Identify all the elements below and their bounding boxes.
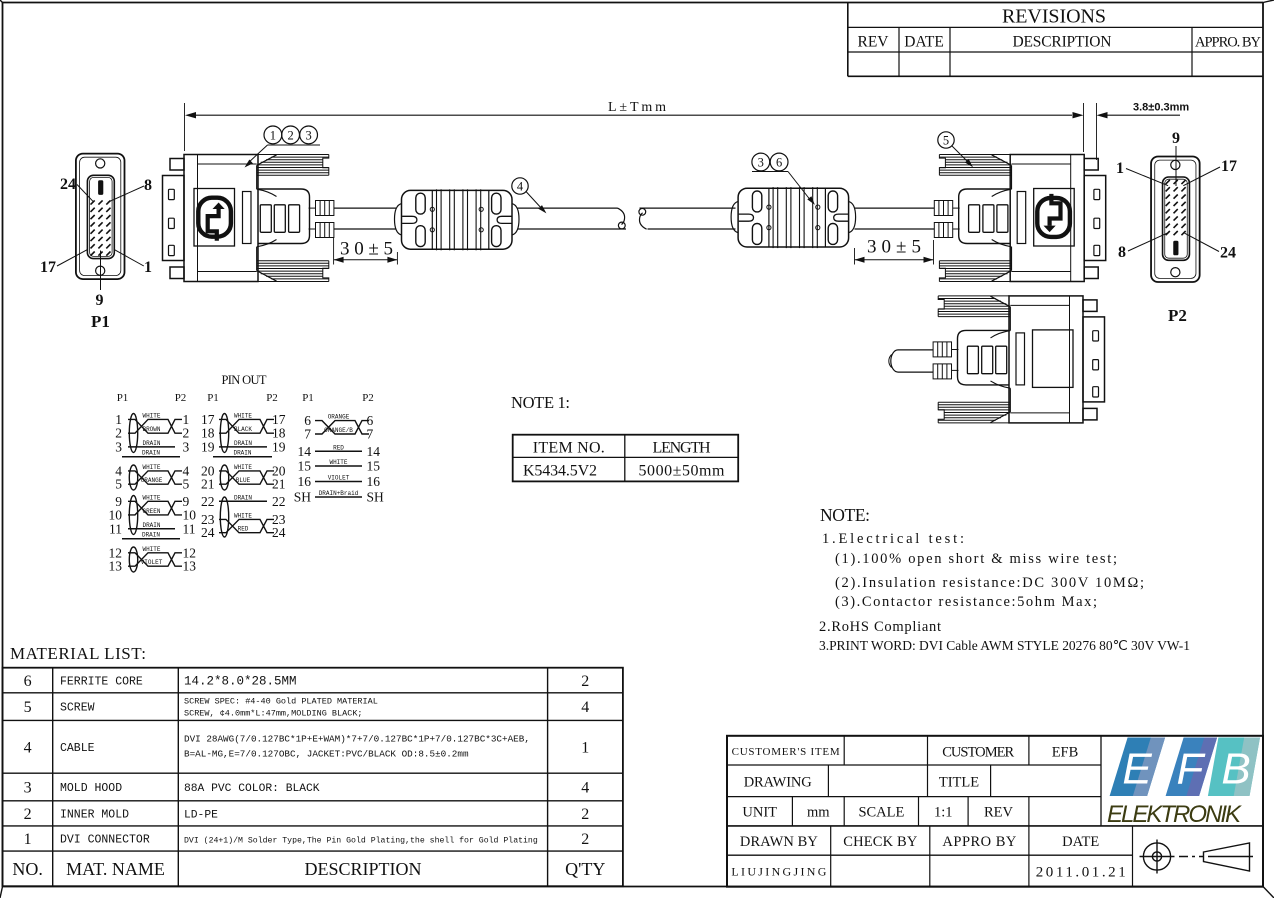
svg-text:E: E <box>1122 745 1152 794</box>
svg-text:Q'TY: Q'TY <box>565 859 605 879</box>
svg-text:DVI 28AWG(7/0.127BC*1P+E+WAM)*: DVI 28AWG(7/0.127BC*1P+E+WAM)*7+7/0.127B… <box>184 733 530 744</box>
svg-text:B: B <box>1221 745 1250 794</box>
svg-text:K5434.5V2: K5434.5V2 <box>523 462 597 479</box>
svg-text:(1).100% open short & miss wir: (1).100% open short & miss wire test; <box>835 551 1117 567</box>
svg-text:14: 14 <box>367 444 381 459</box>
svg-text:8: 8 <box>144 177 152 194</box>
svg-text:11: 11 <box>183 521 196 536</box>
svg-text:P2: P2 <box>266 392 278 404</box>
svg-text:1: 1 <box>183 412 190 427</box>
svg-text:DESCRIPTION: DESCRIPTION <box>305 859 422 879</box>
svg-text:DVI (24+1)/M Solder Type,The P: DVI (24+1)/M Solder Type,The Pin Gold Pl… <box>184 836 538 846</box>
svg-text:CUSTOMER'S ITEM: CUSTOMER'S ITEM <box>732 746 840 758</box>
svg-text:APPRO BY: APPRO BY <box>942 834 1017 850</box>
svg-text:4: 4 <box>581 699 589 716</box>
svg-text:8: 8 <box>1118 244 1126 261</box>
svg-text:INNER MOLD: INNER MOLD <box>60 808 129 821</box>
svg-text:DATE: DATE <box>1062 834 1099 850</box>
svg-text:RED: RED <box>333 444 344 451</box>
svg-text:ELEKTRONIK: ELEKTRONIK <box>1107 801 1242 828</box>
svg-text:WHITE: WHITE <box>142 546 160 553</box>
svg-text:5: 5 <box>943 133 949 147</box>
svg-text:10: 10 <box>183 507 197 522</box>
svg-text:TITLE: TITLE <box>939 775 979 791</box>
svg-text:CHECK BY: CHECK BY <box>843 834 918 850</box>
svg-text:22: 22 <box>201 494 215 509</box>
svg-text:3: 3 <box>305 128 311 142</box>
svg-text:24: 24 <box>272 525 286 540</box>
svg-text:LD-PE: LD-PE <box>184 809 218 821</box>
svg-text:FERRITE CORE: FERRITE CORE <box>60 675 143 688</box>
svg-text:SH: SH <box>367 490 385 505</box>
svg-text:P1: P1 <box>302 392 314 404</box>
svg-text:P2: P2 <box>362 392 374 404</box>
svg-text:17: 17 <box>1221 158 1237 175</box>
svg-text:2.RoHS Compliant: 2.RoHS Compliant <box>819 619 941 635</box>
svg-text:3: 3 <box>183 439 190 454</box>
svg-text:ORANGE/B: ORANGE/B <box>324 427 353 434</box>
svg-text:WHITE: WHITE <box>234 464 252 471</box>
svg-text:1: 1 <box>24 831 32 848</box>
svg-text:13: 13 <box>183 559 197 574</box>
svg-text:UNIT: UNIT <box>742 805 777 821</box>
svg-text:ORANGE: ORANGE <box>328 414 350 421</box>
svg-text:88A PVC COLOR: BLACK: 88A PVC COLOR: BLACK <box>184 783 320 795</box>
svg-text:3.PRINT WORD: DVI Cable AWM ST: 3.PRINT WORD: DVI Cable AWM STYLE 20276 … <box>819 638 1190 653</box>
svg-text:VIOLET: VIOLET <box>141 559 163 566</box>
svg-text:15: 15 <box>367 459 381 474</box>
svg-text:DATE: DATE <box>904 34 944 51</box>
svg-text:MATERIAL LIST:: MATERIAL LIST: <box>10 644 146 663</box>
svg-text:7: 7 <box>304 427 311 442</box>
svg-text:SCREW, ¢4.0mm*L:47mm,MOLDING B: SCREW, ¢4.0mm*L:47mm,MOLDING BLACK; <box>184 708 363 718</box>
svg-text:11: 11 <box>109 521 122 536</box>
svg-text:1: 1 <box>581 739 589 756</box>
svg-text:SCALE: SCALE <box>858 805 904 821</box>
svg-text:WHITE: WHITE <box>329 459 347 466</box>
svg-text:10: 10 <box>109 507 123 522</box>
svg-text:(3).Contactor resistance:5ohm: (3).Contactor resistance:5ohm Max; <box>835 594 1097 610</box>
svg-text:RED: RED <box>238 526 249 533</box>
svg-text:WHITE: WHITE <box>142 412 160 419</box>
svg-text:P1: P1 <box>117 392 129 404</box>
svg-text:19: 19 <box>201 439 215 454</box>
svg-text:14.2*8.0*28.5MM: 14.2*8.0*28.5MM <box>184 674 297 688</box>
svg-text:PIN OUT: PIN OUT <box>222 373 267 387</box>
svg-text:21: 21 <box>272 477 286 492</box>
svg-text:LENGTH: LENGTH <box>653 439 711 456</box>
svg-text:DRAIN: DRAIN <box>142 532 160 539</box>
svg-text:4: 4 <box>517 179 524 193</box>
svg-text:F: F <box>1177 745 1206 794</box>
svg-text:EFB: EFB <box>1052 745 1079 761</box>
svg-text:9: 9 <box>96 292 104 309</box>
svg-text:5: 5 <box>24 699 32 716</box>
svg-text:2: 2 <box>24 806 32 823</box>
svg-text:15: 15 <box>298 459 312 474</box>
svg-text:19: 19 <box>272 439 286 454</box>
svg-text:NOTE:: NOTE: <box>820 505 870 525</box>
svg-text:DRAIN+Braid: DRAIN+Braid <box>319 490 359 497</box>
svg-text:1: 1 <box>115 412 122 427</box>
svg-text:DRAIN: DRAIN <box>142 440 160 447</box>
svg-text:16: 16 <box>367 474 381 489</box>
svg-text:DRAIN: DRAIN <box>233 450 251 457</box>
svg-text:DRAIN: DRAIN <box>234 494 252 501</box>
svg-text:MAT. NAME: MAT. NAME <box>66 859 165 879</box>
svg-text:17: 17 <box>40 259 56 276</box>
svg-text:REV: REV <box>858 34 890 51</box>
svg-text:22: 22 <box>272 494 286 509</box>
svg-text:3: 3 <box>24 780 32 797</box>
svg-text:1:1: 1:1 <box>934 805 953 821</box>
svg-text:SCREW SPEC: #4-40 Gold PLATED: SCREW SPEC: #4-40 Gold PLATED MATERIAL <box>184 696 378 706</box>
svg-text:BLUE: BLUE <box>236 477 251 484</box>
svg-text:DESCRIPTION: DESCRIPTION <box>1013 34 1112 51</box>
svg-text:5000±50mm: 5000±50mm <box>639 462 726 479</box>
svg-text:2: 2 <box>581 831 589 848</box>
svg-text:24: 24 <box>201 525 215 540</box>
svg-text:1: 1 <box>270 128 276 142</box>
svg-text:P1: P1 <box>91 312 110 331</box>
svg-text:ITEM NO.: ITEM NO. <box>533 439 605 456</box>
svg-text:14: 14 <box>298 444 312 459</box>
svg-text:DRAIN: DRAIN <box>234 440 252 447</box>
svg-text:13: 13 <box>109 559 123 574</box>
svg-text:BLACK: BLACK <box>234 426 252 433</box>
svg-text:3: 3 <box>758 155 764 169</box>
svg-text:WHITE: WHITE <box>142 494 160 501</box>
svg-text:REVISIONS: REVISIONS <box>1002 6 1106 28</box>
svg-text:SH: SH <box>294 490 312 505</box>
svg-text:5: 5 <box>115 477 122 492</box>
svg-text:VIOLET: VIOLET <box>328 475 350 482</box>
svg-text:4: 4 <box>581 780 589 797</box>
svg-text:3.8±0.3mm: 3.8±0.3mm <box>1133 102 1189 114</box>
svg-text:WHITE: WHITE <box>234 412 252 419</box>
svg-text:2: 2 <box>581 806 589 823</box>
svg-text:WHITE: WHITE <box>142 464 160 471</box>
svg-text:17: 17 <box>201 412 215 427</box>
svg-text:DRAIN: DRAIN <box>142 450 160 457</box>
svg-text:16: 16 <box>298 474 312 489</box>
svg-text:24: 24 <box>60 176 76 193</box>
svg-text:ORANGE: ORANGE <box>141 477 163 484</box>
svg-text:P1: P1 <box>207 392 219 404</box>
svg-text:3: 3 <box>115 439 122 454</box>
svg-text:4: 4 <box>24 739 32 756</box>
svg-text:17: 17 <box>272 412 286 427</box>
svg-text:REV: REV <box>984 805 1014 821</box>
svg-text:2: 2 <box>581 673 589 690</box>
svg-text:CABLE: CABLE <box>60 742 95 755</box>
svg-text:P2: P2 <box>175 392 187 404</box>
svg-text:DRAWING: DRAWING <box>744 775 813 791</box>
svg-text:(2).Insulation resistance:DC 3: (2).Insulation resistance:DC 300V 10MΩ; <box>835 575 1144 591</box>
svg-text:DRAIN: DRAIN <box>142 522 160 529</box>
svg-text:GREEN: GREEN <box>142 508 160 515</box>
svg-text:WHITE: WHITE <box>234 512 252 519</box>
svg-text:NO.: NO. <box>12 859 43 879</box>
svg-text:P2: P2 <box>1168 306 1187 325</box>
svg-text:B=AL-MG,E=7/0.127OBC, JACKET:: B=AL-MG,E=7/0.127OBC, JACKET:PVC/BLACK O… <box>184 748 469 759</box>
svg-text:1: 1 <box>144 259 152 276</box>
svg-text:BROWN: BROWN <box>142 426 160 433</box>
svg-text:SCREW: SCREW <box>60 702 95 715</box>
svg-text:24: 24 <box>1220 245 1236 262</box>
svg-text:2: 2 <box>287 128 293 142</box>
svg-text:6: 6 <box>24 673 32 690</box>
svg-text:mm: mm <box>807 805 830 821</box>
svg-text:APPRO. BY: APPRO. BY <box>1195 35 1262 51</box>
svg-text:1: 1 <box>1116 160 1124 177</box>
svg-text:DRAWN BY: DRAWN BY <box>740 834 819 850</box>
svg-text:5: 5 <box>183 477 190 492</box>
svg-text:6: 6 <box>776 155 782 169</box>
svg-text:NOTE 1:: NOTE 1: <box>511 393 570 412</box>
svg-text:21: 21 <box>201 477 215 492</box>
svg-text:9: 9 <box>1172 130 1180 147</box>
svg-text:CUSTOMER: CUSTOMER <box>942 745 1014 761</box>
svg-text:MOLD HOOD: MOLD HOOD <box>60 782 122 795</box>
svg-text:DVI CONNECTOR: DVI CONNECTOR <box>60 834 150 847</box>
